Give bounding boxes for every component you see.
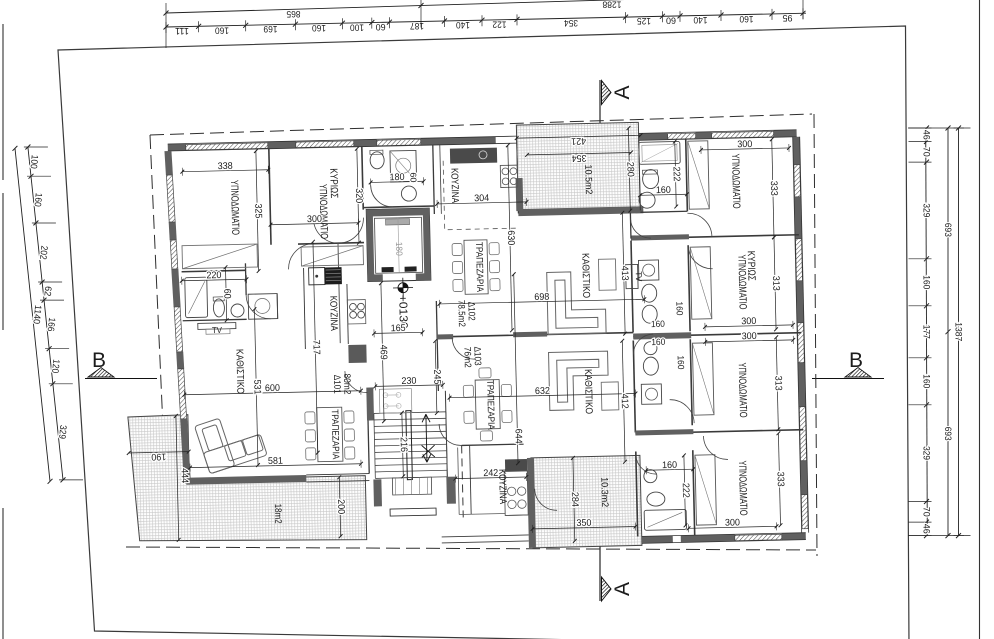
svg-text:325: 325 — [252, 203, 263, 218]
svg-text:95: 95 — [783, 13, 793, 24]
svg-text:ΥΠΝΟΔΩΜΑΤΙΟ: ΥΠΝΟΔΩΜΑΤΙΟ — [317, 184, 330, 239]
svg-text:60: 60 — [221, 289, 232, 299]
svg-text:300: 300 — [741, 316, 756, 327]
svg-text:160: 160 — [656, 185, 671, 196]
svg-text:46: 46 — [921, 130, 932, 140]
svg-text:413: 413 — [619, 266, 630, 281]
svg-text:600: 600 — [265, 383, 280, 394]
svg-text:304: 304 — [474, 193, 490, 204]
svg-text:200: 200 — [335, 499, 346, 514]
svg-text:100: 100 — [28, 154, 40, 169]
svg-text:60: 60 — [376, 22, 386, 33]
svg-text:10.3m2: 10.3m2 — [598, 477, 610, 507]
svg-text:160: 160 — [674, 301, 684, 315]
svg-text:320: 320 — [353, 188, 364, 203]
svg-text:187: 187 — [410, 21, 424, 32]
svg-text:160: 160 — [215, 25, 229, 36]
svg-text:1387: 1387 — [953, 322, 964, 341]
svg-text:ΚΑΘΙΣΤΙΚΟ: ΚΑΘΙΣΤΙΚΟ — [579, 253, 591, 298]
svg-text:300: 300 — [742, 331, 757, 342]
svg-text:ΥΠΝΟΔΩΜΑΤΙΟ: ΥΠΝΟΔΩΜΑΤΙΟ — [736, 362, 749, 417]
svg-text:222: 222 — [680, 483, 691, 498]
svg-text:46: 46 — [921, 524, 932, 534]
svg-text:220: 220 — [206, 270, 221, 281]
svg-text:350: 350 — [576, 518, 591, 529]
svg-text:ΚΟΥΖΙΝΑ: ΚΟΥΖΙΝΑ — [327, 296, 339, 331]
svg-text:ΚΑΘΙΣΤΙΚΟ: ΚΑΘΙΣΤΙΚΟ — [582, 369, 594, 414]
svg-text:1140: 1140 — [31, 305, 44, 325]
svg-text:421: 421 — [571, 135, 586, 146]
svg-text:160: 160 — [740, 14, 754, 25]
svg-text:ΚΑΘΙΣΤΙΚΟ: ΚΑΘΙΣΤΙΚΟ — [233, 349, 245, 394]
svg-text:280: 280 — [624, 162, 635, 177]
svg-text:160: 160 — [662, 460, 677, 471]
svg-text:TV: TV — [212, 325, 223, 335]
svg-text:60: 60 — [666, 16, 676, 27]
svg-text:160: 160 — [651, 319, 665, 329]
svg-text:190: 190 — [151, 451, 166, 462]
svg-text:717: 717 — [310, 340, 321, 355]
svg-text:122: 122 — [493, 19, 507, 30]
svg-text:18m2: 18m2 — [272, 504, 283, 524]
svg-text:ΤΡΑΠΕΖΑΡΙΑ: ΤΡΑΠΕΖΑΡΙΑ — [329, 409, 341, 460]
svg-text:222: 222 — [671, 166, 682, 181]
svg-text:354: 354 — [564, 18, 578, 29]
svg-text:693: 693 — [943, 223, 954, 237]
svg-text:140: 140 — [456, 20, 470, 31]
svg-text:329: 329 — [57, 425, 69, 440]
svg-text:444: 444 — [179, 468, 190, 484]
svg-text:865: 865 — [287, 9, 301, 20]
svg-text:300: 300 — [307, 214, 322, 225]
svg-text:160: 160 — [312, 23, 326, 34]
svg-text:140: 140 — [694, 15, 708, 26]
svg-text:531: 531 — [251, 379, 262, 394]
svg-text:693: 693 — [943, 427, 954, 441]
svg-text:160: 160 — [32, 192, 44, 207]
svg-text:ΤΡΑΠΕΖΑΡΙΑ: ΤΡΑΠΕΖΑΡΙΑ — [484, 380, 496, 431]
svg-text:ΥΠΝΟΔΩΜΑΤΙΟ: ΥΠΝΟΔΩΜΑΤΙΟ — [729, 154, 742, 209]
svg-text:338: 338 — [218, 161, 233, 172]
svg-text:632: 632 — [535, 386, 550, 397]
svg-text:300: 300 — [737, 139, 752, 150]
svg-text:62: 62 — [42, 286, 54, 297]
svg-text:202: 202 — [38, 245, 50, 260]
svg-text:581: 581 — [268, 456, 283, 467]
svg-text:A: A — [611, 85, 634, 99]
svg-text:70: 70 — [921, 147, 932, 157]
svg-text:177: 177 — [921, 325, 932, 339]
svg-text:60: 60 — [408, 172, 418, 182]
svg-text:70: 70 — [921, 507, 932, 517]
svg-text:180: 180 — [394, 242, 404, 256]
svg-text:245: 245 — [431, 369, 442, 384]
svg-text:329: 329 — [921, 203, 932, 217]
svg-text:A: A — [611, 582, 634, 596]
svg-text:333: 333 — [768, 181, 779, 196]
svg-text:630: 630 — [505, 230, 516, 245]
svg-text:180: 180 — [389, 172, 404, 183]
svg-text:111: 111 — [175, 26, 189, 37]
svg-text:ΥΠΝΟΔΩΜΑΤΙΟ: ΥΠΝΟΔΩΜΑΤΙΟ — [735, 254, 748, 309]
svg-text:242: 242 — [483, 468, 498, 479]
svg-text:412: 412 — [619, 394, 630, 409]
svg-text:300: 300 — [725, 517, 740, 528]
svg-text:TV: TV — [634, 271, 644, 282]
svg-text:333: 333 — [774, 472, 785, 487]
svg-text:160: 160 — [921, 374, 932, 388]
svg-text:698: 698 — [534, 292, 549, 303]
svg-text:76m2: 76m2 — [461, 347, 472, 368]
svg-text:ΚΟΥΖΙΝΑ: ΚΟΥΖΙΝΑ — [448, 168, 460, 203]
svg-text:169: 169 — [264, 24, 278, 35]
svg-text:313: 313 — [772, 376, 783, 391]
svg-text:160: 160 — [921, 275, 932, 289]
svg-text:120: 120 — [50, 359, 62, 374]
svg-text:644: 644 — [512, 429, 523, 445]
svg-text:166: 166 — [46, 317, 58, 332]
svg-text:313: 313 — [770, 276, 781, 291]
svg-text:160: 160 — [651, 337, 665, 347]
svg-text:100: 100 — [350, 22, 364, 33]
svg-text:230: 230 — [401, 376, 416, 387]
svg-text:ΥΠΝΟΔΩΜΑΤΙΟ: ΥΠΝΟΔΩΜΑΤΙΟ — [736, 460, 749, 515]
svg-text:125: 125 — [637, 16, 651, 27]
svg-text:ΤΡΑΠΕΖΑΡΙΑ: ΤΡΑΠΕΖΑΡΙΑ — [473, 242, 485, 293]
svg-text:ΥΠΝΟΔΩΜΑΤΙΟ: ΥΠΝΟΔΩΜΑΤΙΟ — [228, 180, 241, 235]
svg-text:469: 469 — [378, 345, 389, 360]
svg-text:1288: 1288 — [603, 0, 622, 10]
svg-text:165: 165 — [391, 323, 406, 334]
svg-text:160: 160 — [676, 355, 686, 369]
svg-text:284: 284 — [569, 492, 580, 508]
svg-text:329: 329 — [921, 446, 932, 460]
svg-text:354: 354 — [571, 152, 587, 163]
svg-text:216: 216 — [398, 437, 409, 452]
svg-text:10.5m2: 10.5m2 — [582, 164, 594, 194]
svg-text:78.5m2: 78.5m2 — [455, 300, 467, 327]
